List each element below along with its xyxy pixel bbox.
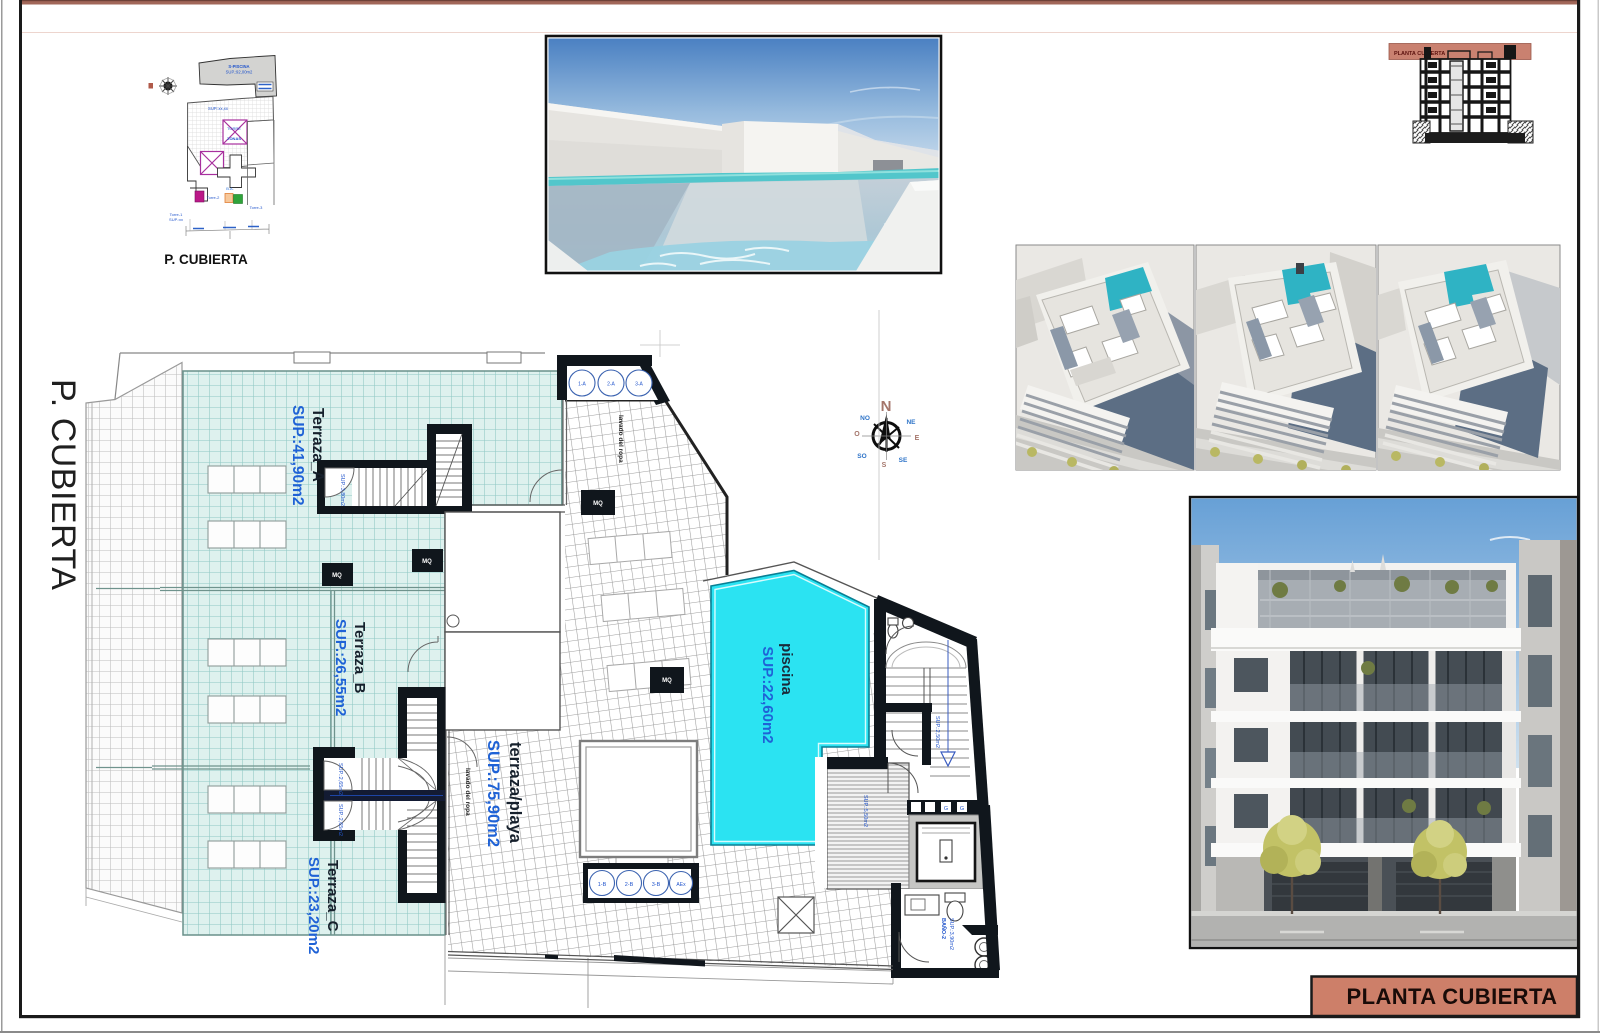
svg-text:3-A: 3-A — [635, 382, 643, 388]
svg-text:S-PISCINA: S-PISCINA — [228, 64, 249, 69]
svg-text:1-A: 1-A — [578, 382, 586, 388]
svg-text:MQ: MQ — [662, 678, 672, 684]
svg-text:Torre-3: Torre-3 — [250, 205, 263, 210]
svg-text:SUP.:2,50m2: SUP.:2,50m2 — [934, 716, 940, 748]
svg-text:1-B: 1-B — [598, 882, 607, 888]
svg-text:N: N — [881, 398, 892, 415]
svg-text:PLANTA CUBIERTA: PLANTA CUBIERTA — [1394, 51, 1445, 57]
svg-text:lavado del ropa: lavado del ropa — [464, 768, 471, 816]
svg-text:SUP.:23,20m2: SUP.:23,20m2 — [305, 857, 322, 954]
svg-text:SUP.:75,90m2: SUP.:75,90m2 — [484, 740, 502, 847]
svg-text:Terraza_B: Terraza_B — [351, 622, 368, 694]
svg-text:SUP.:xx,xx: SUP.:xx,xx — [208, 106, 229, 111]
svg-text:SUP.:3,90m2: SUP.:3,90m2 — [948, 918, 954, 950]
svg-text:lavado del ropa: lavado del ropa — [617, 415, 624, 463]
svg-text:MQ: MQ — [593, 501, 603, 507]
svg-text:G: G — [960, 806, 964, 812]
svg-text:Terraza_A: Terraza_A — [309, 408, 326, 482]
svg-text:BAÑO-2: BAÑO-2 — [940, 918, 947, 939]
svg-text:Terraza_C: Terraza_C — [324, 860, 341, 932]
svg-text:terraza/playa: terraza/playa — [506, 742, 524, 844]
svg-text:2-B: 2-B — [625, 882, 634, 888]
svg-text:SUP.:22,60m2: SUP.:22,60m2 — [759, 646, 776, 743]
svg-text:3-B: 3-B — [652, 882, 661, 888]
svg-text:SUP.:26,55m2: SUP.:26,55m2 — [332, 619, 349, 716]
svg-text:2-A: 2-A — [607, 382, 615, 388]
svg-text:SUP.:92,00m2: SUP.:92,00m2 — [226, 70, 253, 75]
svg-text:B.A.: B.A. — [226, 186, 234, 191]
svg-text:SUP.:3,80m2: SUP.:3,80m2 — [339, 474, 345, 506]
svg-text:SUP.:5,50m2: SUP.:5,50m2 — [862, 795, 868, 827]
svg-text:P. CUBIERTA: P. CUBIERTA — [164, 252, 248, 267]
svg-text:MQ: MQ — [332, 573, 342, 579]
svg-text:P. CUBIERTA: P. CUBIERTA — [44, 379, 82, 590]
svg-text:E: E — [915, 435, 920, 442]
svg-text:O: O — [854, 431, 860, 438]
svg-text:S: S — [882, 462, 887, 469]
svg-text:Torre-2: Torre-2 — [207, 195, 220, 200]
svg-text:SUP.:41,90m2: SUP.:41,90m2 — [289, 405, 306, 506]
svg-text:MQ: MQ — [422, 559, 432, 565]
svg-text:SUP.:2,65m2: SUP.:2,65m2 — [337, 804, 343, 836]
svg-text:ZONAS: ZONAS — [227, 136, 241, 141]
svg-text:TORRE: TORRE — [227, 126, 241, 131]
svg-text:NE: NE — [906, 419, 916, 426]
svg-text:SO: SO — [857, 453, 866, 460]
svg-text:SE: SE — [899, 457, 908, 464]
svg-text:NO: NO — [860, 415, 870, 422]
svg-text:SUP.:xx: SUP.:xx — [169, 217, 183, 222]
svg-text:piscina: piscina — [778, 643, 795, 695]
svg-text:PLANTA CUBIERTA: PLANTA CUBIERTA — [1347, 984, 1558, 1009]
svg-text:SUP.:2,65m2: SUP.:2,65m2 — [337, 763, 343, 795]
svg-text:AEx: AEx — [676, 882, 686, 888]
svg-text:G: G — [944, 806, 948, 812]
